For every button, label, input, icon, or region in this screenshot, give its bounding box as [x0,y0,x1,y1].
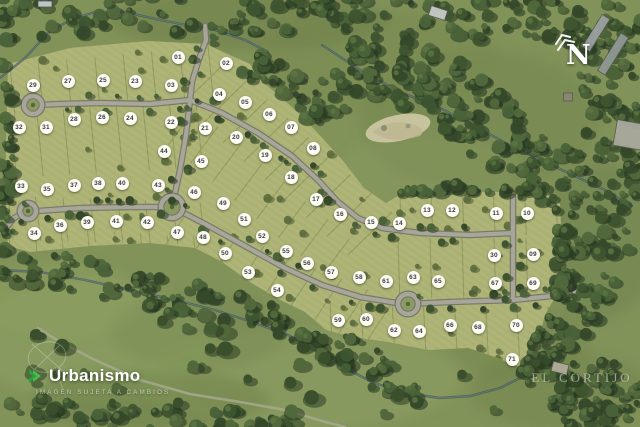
lot-badge-38[interactable]: 38 [92,177,105,190]
lot-badge-29[interactable]: 29 [27,79,40,92]
logo-wordmark: Urbanismo [49,366,141,386]
lot-badge-04[interactable]: 04 [213,88,226,101]
lot-badge-32[interactable]: 32 [13,121,26,134]
lot-badge-58[interactable]: 58 [353,271,366,284]
lot-badge-30[interactable]: 30 [488,249,501,262]
lot-badge-18[interactable]: 18 [285,171,298,184]
masterplan-map: 0102030405060708091011121314151617181920… [0,0,640,427]
lot-badge-27[interactable]: 27 [62,75,75,88]
lot-badge-09[interactable]: 09 [527,248,540,261]
lot-badge-14[interactable]: 14 [393,217,406,230]
lot-badge-36[interactable]: 36 [54,219,67,232]
lot-badge-26[interactable]: 26 [96,111,109,124]
urbanismo-chevron-icon [28,368,44,384]
lot-badge-63[interactable]: 63 [407,271,420,284]
compass-north: N [548,28,600,78]
lot-badge-39[interactable]: 39 [81,216,94,229]
developer-logo: Urbanismo IMAGEN SUJETA A CAMBIOS [28,366,178,396]
lot-badge-42[interactable]: 42 [141,216,154,229]
lot-badge-10[interactable]: 10 [521,207,534,220]
lot-badge-46[interactable]: 46 [188,186,201,199]
lot-badge-43[interactable]: 43 [152,179,165,192]
lot-badge-44[interactable]: 44 [158,145,171,158]
lot-badge-02[interactable]: 02 [220,57,233,70]
lot-badge-57[interactable]: 57 [325,266,338,279]
lot-badge-71[interactable]: 71 [506,353,519,366]
lot-badge-33[interactable]: 33 [15,180,28,193]
lot-badge-54[interactable]: 54 [271,284,284,297]
lot-badge-21[interactable]: 21 [199,122,212,135]
lot-badge-28[interactable]: 28 [68,113,81,126]
aerial-terrain [0,0,640,427]
lot-badge-56[interactable]: 56 [301,257,314,270]
lot-badge-19[interactable]: 19 [259,149,272,162]
lot-badge-20[interactable]: 20 [230,131,243,144]
lot-badge-11[interactable]: 11 [490,207,503,220]
lot-badge-41[interactable]: 41 [110,215,123,228]
lot-badge-52[interactable]: 52 [256,230,269,243]
lot-badge-05[interactable]: 05 [239,96,252,109]
lot-badge-68[interactable]: 68 [472,321,485,334]
lot-badge-34[interactable]: 34 [28,227,41,240]
lot-badge-51[interactable]: 51 [238,213,251,226]
lot-badge-06[interactable]: 06 [263,108,276,121]
lot-badge-23[interactable]: 23 [129,75,142,88]
lot-badge-45[interactable]: 45 [195,155,208,168]
lot-badge-25[interactable]: 25 [97,74,110,87]
place-label-el-cortijo: EL CORTIJO [527,370,637,386]
lot-badge-59[interactable]: 59 [332,314,345,327]
lot-badge-17[interactable]: 17 [310,193,323,206]
lot-badge-67[interactable]: 67 [489,277,502,290]
lot-badge-64[interactable]: 64 [413,325,426,338]
lot-badge-07[interactable]: 07 [285,121,298,134]
lot-badge-37[interactable]: 37 [68,179,81,192]
lot-badge-16[interactable]: 16 [334,208,347,221]
disclaimer-text: IMAGEN SUJETA A CAMBIOS [36,389,178,396]
lot-badge-40[interactable]: 40 [116,177,129,190]
lot-badge-01[interactable]: 01 [172,51,185,64]
lot-badge-35[interactable]: 35 [41,183,54,196]
lot-badge-47[interactable]: 47 [171,226,184,239]
lot-badge-48[interactable]: 48 [197,231,210,244]
lot-badge-03[interactable]: 03 [165,79,178,92]
lot-badge-22[interactable]: 22 [165,116,178,129]
lot-badge-50[interactable]: 50 [219,247,232,260]
lot-badge-08[interactable]: 08 [307,142,320,155]
lot-badge-53[interactable]: 53 [242,266,255,279]
lot-badge-62[interactable]: 62 [388,324,401,337]
lot-badge-49[interactable]: 49 [217,197,230,210]
lot-badge-55[interactable]: 55 [280,245,293,258]
lot-badge-65[interactable]: 65 [432,275,445,288]
lot-badge-15[interactable]: 15 [365,216,378,229]
lot-badge-13[interactable]: 13 [421,204,434,217]
lot-badge-70[interactable]: 70 [510,319,523,332]
lot-badge-61[interactable]: 61 [380,275,393,288]
compass-n-label: N [566,42,591,69]
lot-badge-24[interactable]: 24 [124,112,137,125]
lot-badge-12[interactable]: 12 [446,204,459,217]
lot-badge-69[interactable]: 69 [527,277,540,290]
lot-badge-66[interactable]: 66 [444,319,457,332]
lot-badge-60[interactable]: 60 [360,313,373,326]
lot-badge-31[interactable]: 31 [40,121,53,134]
